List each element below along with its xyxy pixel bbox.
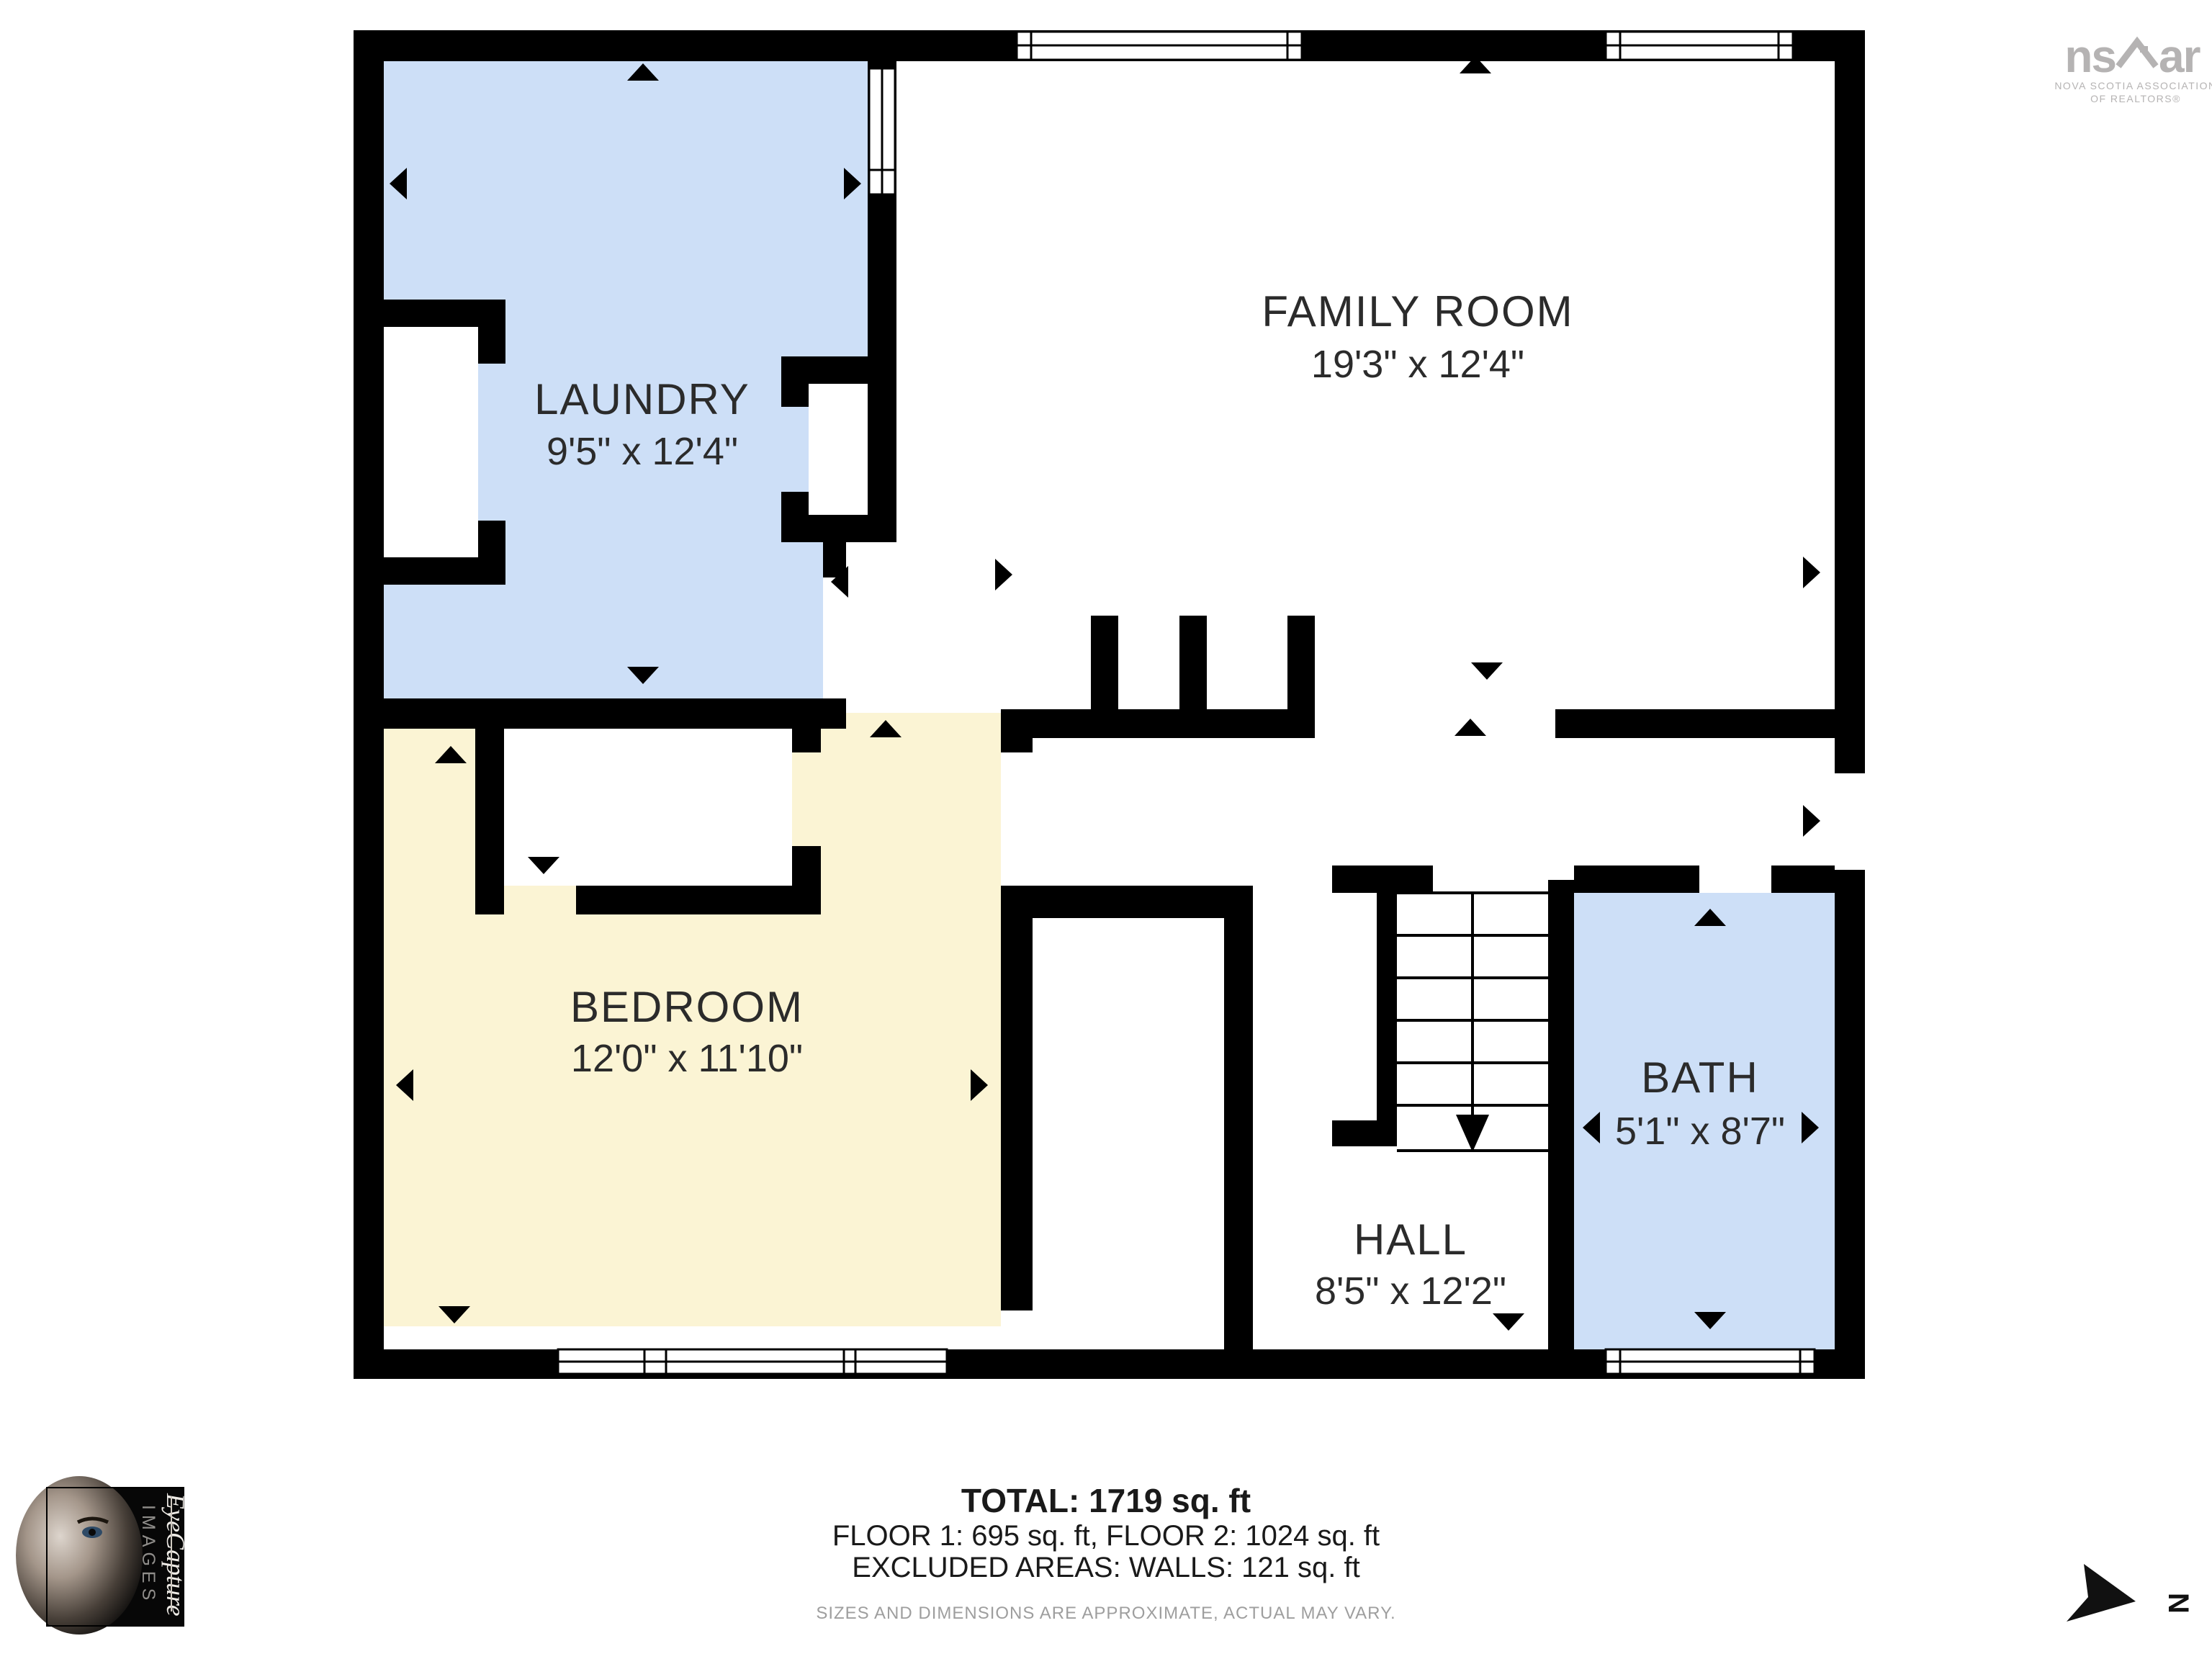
floor-plan: LAUNDRY 9'5" x 12'4" FAMILY ROOM 19'3" x… <box>354 30 1865 1379</box>
face-pupil <box>89 1529 96 1536</box>
label-bath: BATH <box>1641 1053 1759 1102</box>
eyecapture-logo: EyeCapture IMAGES <box>16 1476 190 1635</box>
north-label: N <box>2162 1593 2194 1614</box>
dims-hall: 8'5" x 12'2" <box>1315 1269 1506 1313</box>
summary-disclaimer: SIZES AND DIMENSIONS ARE APPROXIMATE, AC… <box>816 1604 1395 1623</box>
laundry-alcove-interior <box>384 327 478 557</box>
summary-total: TOTAL: 1719 sq. ft <box>961 1482 1251 1519</box>
hall-closet-door-gap <box>1001 1310 1033 1349</box>
summary-excluded: EXCLUDED AREAS: WALLS: 121 sq. ft <box>852 1552 1359 1583</box>
nsar-subtext-2: OF REALTORS® <box>2090 93 2181 104</box>
window-bedroom <box>558 1349 947 1374</box>
eyecapture-text: EyeCapture <box>161 1493 190 1617</box>
hall-closet-interior <box>1033 918 1224 1349</box>
window-top-left <box>1017 32 1302 60</box>
laundry-closet-interior <box>809 384 868 515</box>
label-bedroom: BEDROOM <box>570 983 804 1031</box>
nsar-logo-right: ar <box>2159 30 2200 82</box>
images-text: IMAGES <box>138 1505 158 1605</box>
north-compass: N <box>2067 1564 2194 1622</box>
nsar-logo: ns ar NOVA SCOTIA ASSOCIATION OF REALTOR… <box>2054 30 2212 104</box>
dims-bath: 5'1" x 8'7" <box>1615 1110 1785 1153</box>
nsar-subtext-1: NOVA SCOTIA ASSOCIATION <box>2054 80 2212 91</box>
label-laundry: LAUNDRY <box>534 375 750 423</box>
bedroom-window-sill <box>384 1326 1001 1349</box>
window-top-right <box>1606 32 1793 60</box>
summary-block: TOTAL: 1719 sq. ft FLOOR 1: 695 sq. ft, … <box>816 1482 1395 1623</box>
window-laundry-interior <box>869 68 895 194</box>
label-family-room: FAMILY ROOM <box>1262 287 1573 336</box>
label-hall: HALL <box>1354 1215 1467 1264</box>
nsar-logo-left: ns <box>2064 30 2116 82</box>
dims-laundry: 9'5" x 12'4" <box>547 430 738 473</box>
face-image <box>16 1476 143 1635</box>
floorplan-canvas: LAUNDRY 9'5" x 12'4" FAMILY ROOM 19'3" x… <box>0 0 2212 1659</box>
dims-bedroom: 12'0" x 11'10" <box>571 1037 803 1080</box>
nsar-roof-dot <box>2140 46 2148 53</box>
window-bath <box>1606 1349 1815 1374</box>
dims-family-room: 19'3" x 12'4" <box>1311 343 1524 386</box>
summary-floors: FLOOR 1: 695 sq. ft, FLOOR 2: 1024 sq. f… <box>832 1520 1380 1552</box>
north-arrow-icon <box>2067 1564 2136 1622</box>
nsar-roof-icon <box>2118 42 2156 66</box>
